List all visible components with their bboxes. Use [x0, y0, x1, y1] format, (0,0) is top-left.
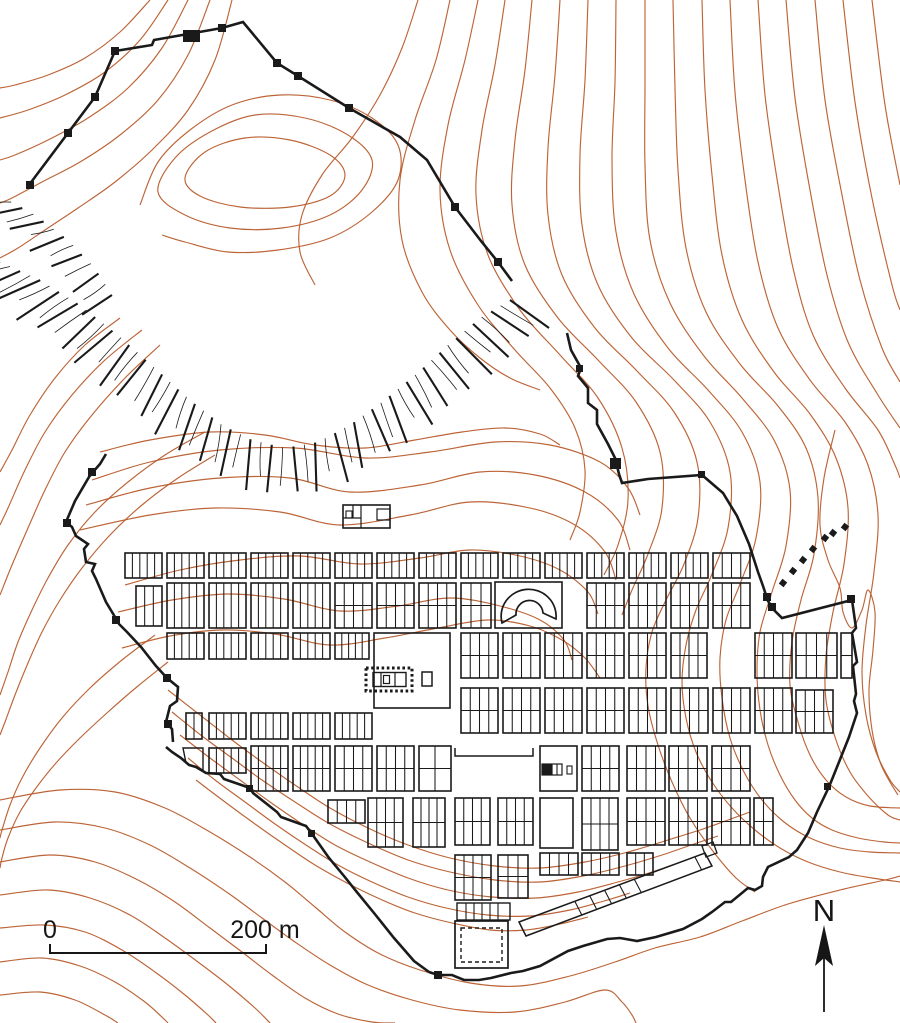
- north-arrow: N: [813, 893, 835, 1012]
- north-label: N: [813, 893, 835, 928]
- scale-end-label: 200 m: [230, 916, 299, 944]
- scale-bar: 0 200 m: [43, 916, 300, 953]
- map-canvas: 0 200 m N: [0, 0, 900, 1023]
- scale-zero-label: 0: [43, 916, 57, 944]
- contour-lines: [0, 0, 900, 1023]
- site-plan-map: 0 200 m N: [0, 0, 900, 1023]
- insula-blocks: [125, 553, 852, 900]
- city-wall: [29, 22, 857, 980]
